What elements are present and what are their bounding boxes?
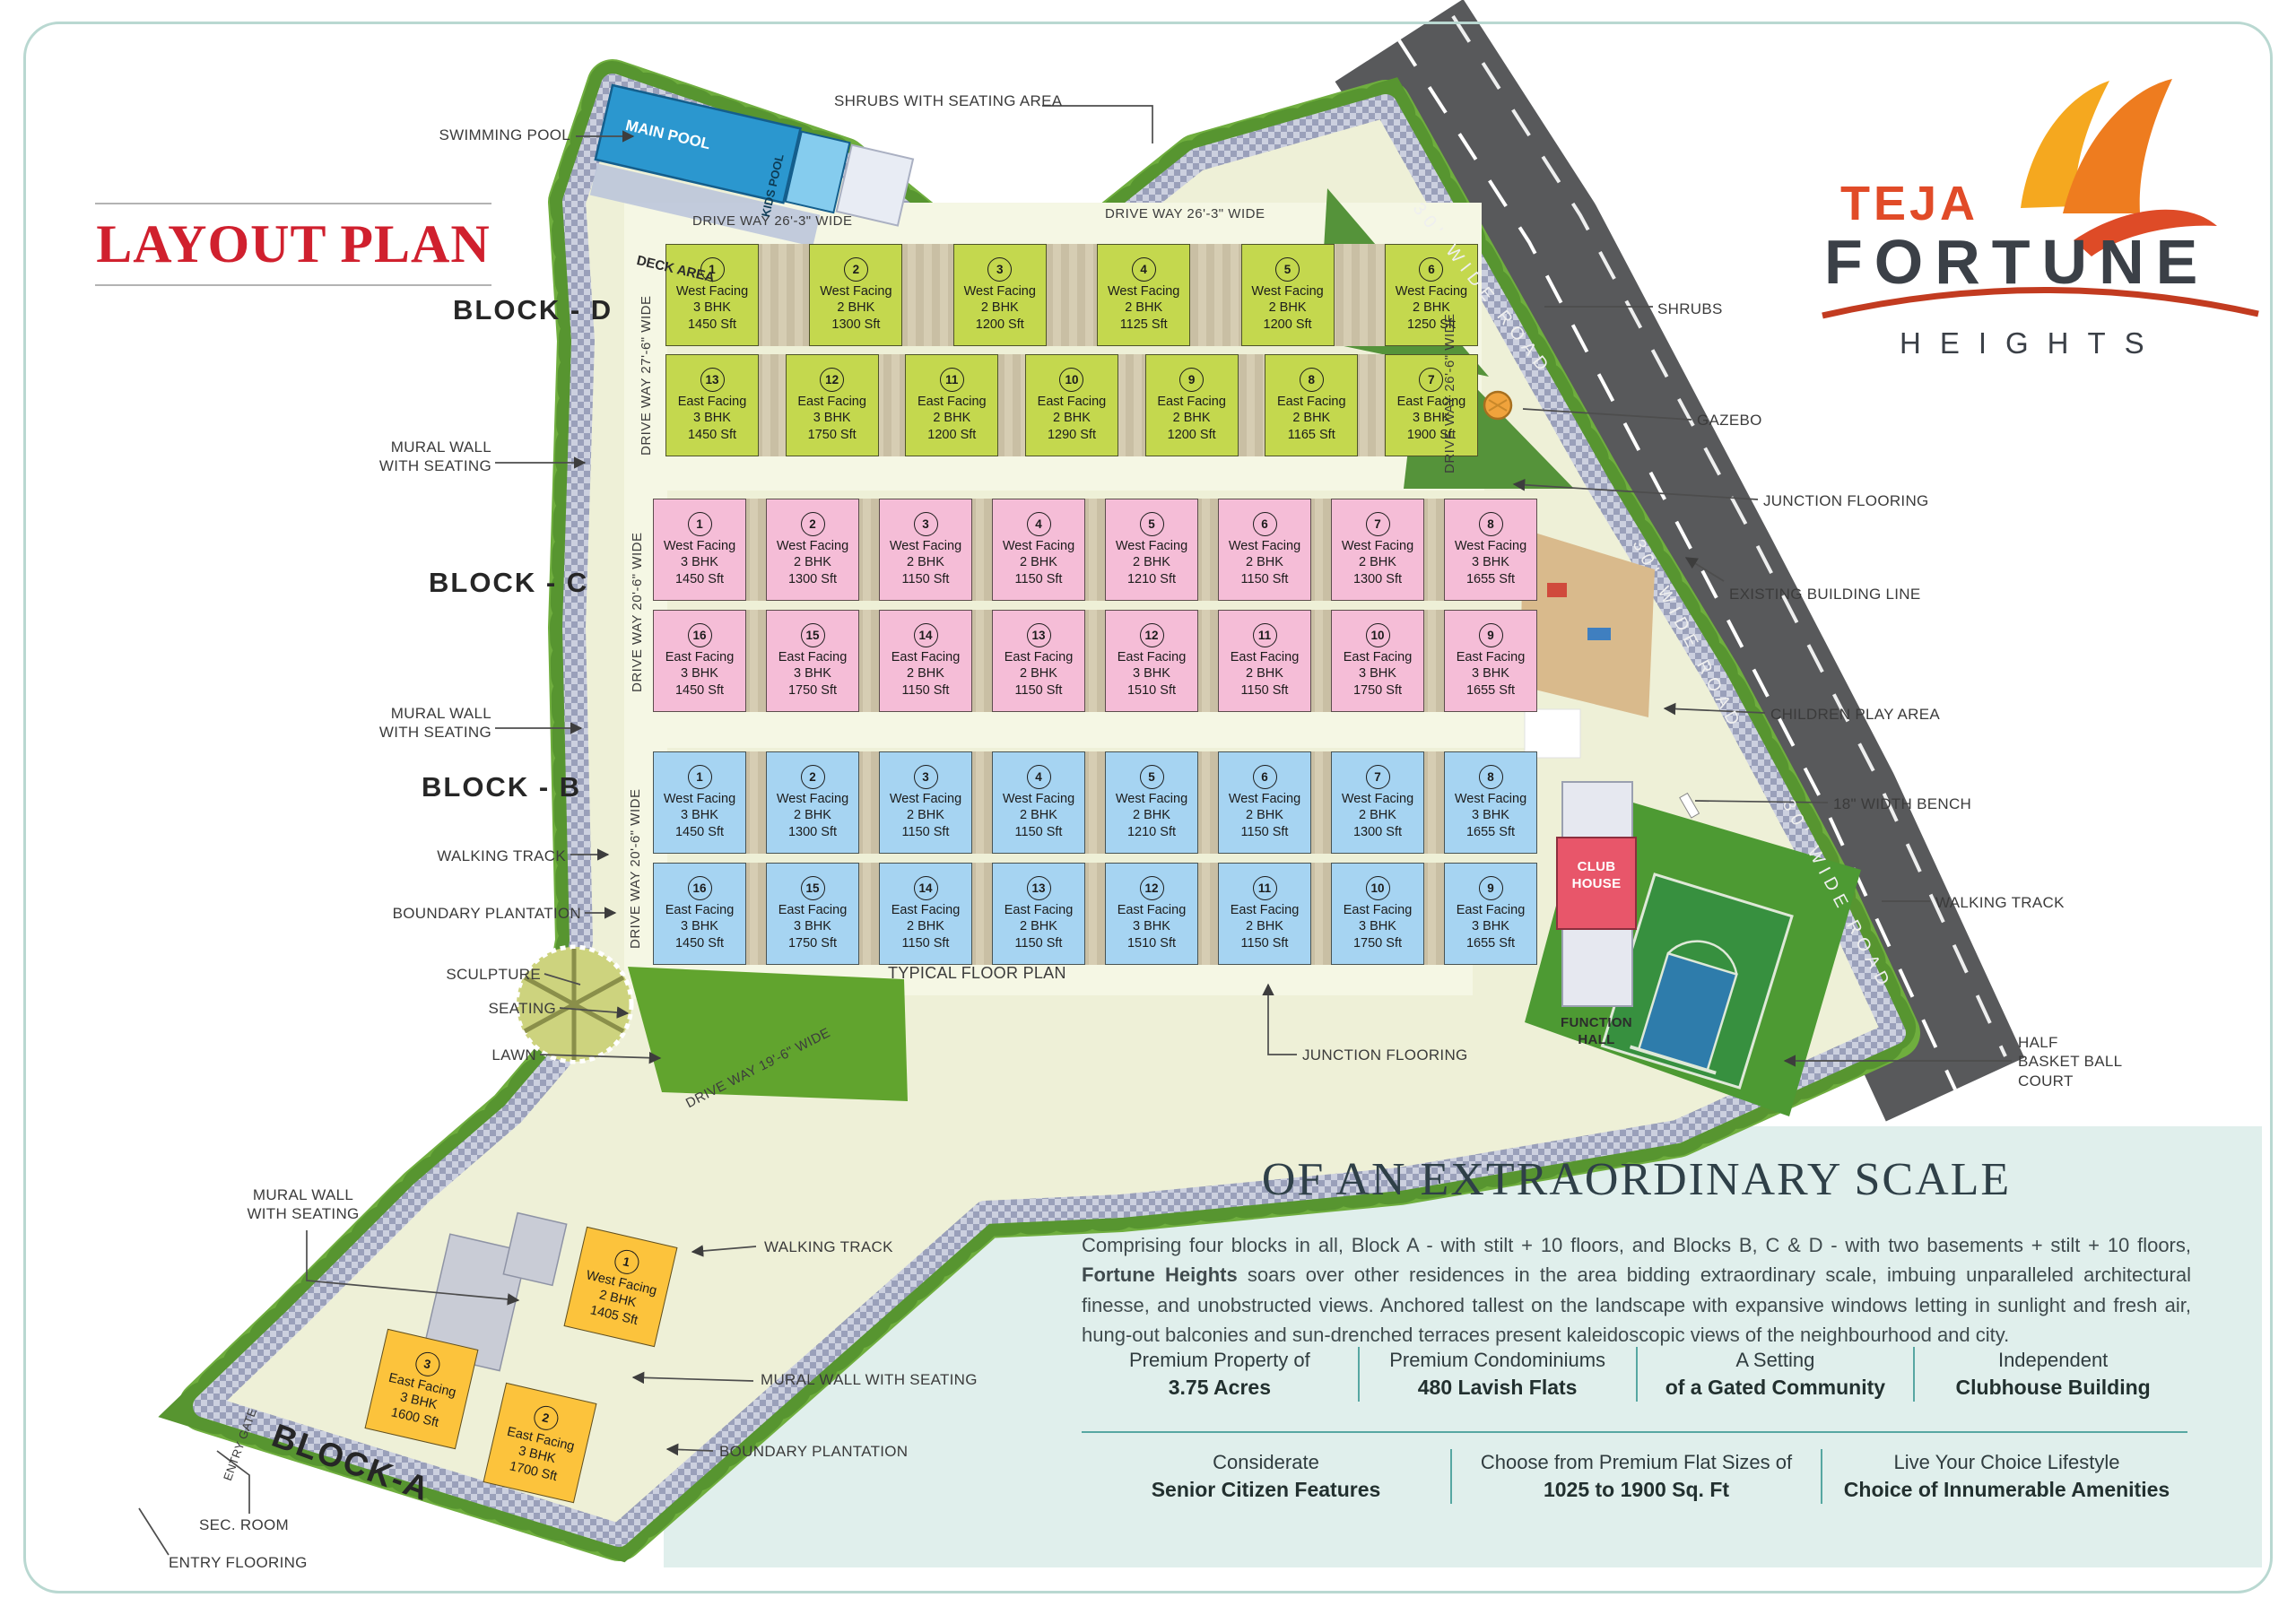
page-frame [23, 22, 2273, 1593]
layout-plan-page: 1West Facing3 BHK1450 Sft2West Facing2 B… [0, 0, 2296, 1615]
